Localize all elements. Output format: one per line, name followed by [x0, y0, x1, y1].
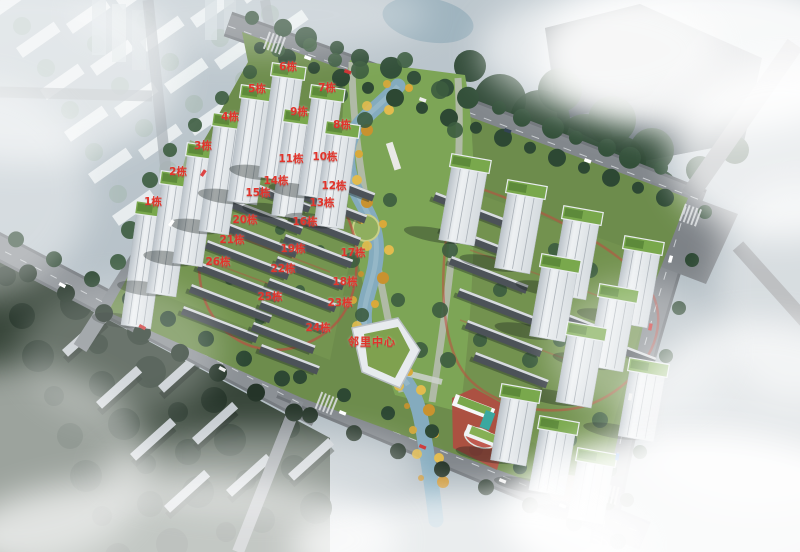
fog-cloud: [550, 280, 730, 420]
tree: [215, 91, 229, 105]
yellow-tree: [384, 245, 394, 255]
tree: [569, 131, 583, 145]
tree: [685, 253, 699, 267]
yellow-tree: [409, 426, 417, 434]
yellow-tree: [404, 403, 410, 409]
yellow-tree: [416, 385, 426, 395]
tree: [442, 242, 458, 258]
aerial-rendering: 1栋2栋3栋4栋5栋6栋7栋8栋9栋10栋11栋12栋13栋14栋15栋16栋1…: [0, 0, 800, 552]
yellow-tree: [371, 300, 379, 308]
tree: [386, 89, 404, 107]
yellow-tree: [352, 175, 362, 185]
tree: [142, 172, 158, 188]
tree: [188, 118, 202, 132]
yellow-tree: [384, 105, 394, 115]
tree: [416, 102, 428, 114]
yellow-tree: [383, 80, 391, 88]
fog-cloud: [20, 280, 220, 420]
tree: [602, 169, 620, 187]
yellow-tree: [362, 101, 372, 111]
yellow-tree: [377, 272, 389, 284]
yellow-tree: [437, 476, 449, 488]
tree: [431, 81, 449, 99]
yellow-tree: [362, 241, 372, 251]
tree: [654, 161, 668, 175]
tree: [163, 143, 177, 157]
tree: [337, 388, 351, 402]
tree: [397, 52, 413, 68]
background-tree: [185, 95, 203, 113]
tree: [381, 406, 395, 420]
tree: [201, 387, 227, 413]
rendering-canvas: [0, 0, 800, 552]
tree: [492, 101, 506, 115]
tree: [407, 71, 421, 85]
yellow-tree: [379, 220, 387, 228]
tree: [470, 122, 482, 134]
tree: [656, 189, 674, 207]
yellow-tree: [412, 449, 422, 459]
tree: [432, 302, 448, 318]
background-tree: [109, 185, 127, 203]
tree: [236, 351, 252, 367]
tree: [632, 182, 644, 194]
tree: [513, 109, 531, 127]
tree: [447, 122, 463, 138]
tree: [598, 139, 616, 157]
tree: [434, 461, 450, 477]
yellow-tree: [355, 150, 363, 158]
fog-cloud: [100, 430, 420, 510]
tree: [425, 424, 439, 438]
tree: [548, 149, 566, 167]
tree: [391, 293, 405, 307]
tree: [351, 61, 369, 79]
tree: [243, 65, 257, 79]
yellow-tree: [358, 271, 364, 277]
tree: [362, 82, 374, 94]
tree: [302, 407, 318, 423]
tree: [274, 370, 290, 386]
yellow-tree: [418, 475, 424, 481]
tree: [285, 403, 303, 421]
tree: [247, 384, 265, 402]
tree: [578, 162, 590, 174]
tree: [110, 254, 126, 270]
tree: [619, 147, 641, 169]
tree: [542, 117, 564, 139]
tree: [457, 87, 479, 109]
tree: [328, 53, 342, 67]
tree: [383, 193, 397, 207]
yellow-tree: [405, 84, 413, 92]
tree: [524, 142, 536, 154]
yellow-tree: [423, 404, 435, 416]
tree: [308, 62, 320, 74]
tree: [440, 352, 456, 368]
tree: [355, 308, 369, 322]
